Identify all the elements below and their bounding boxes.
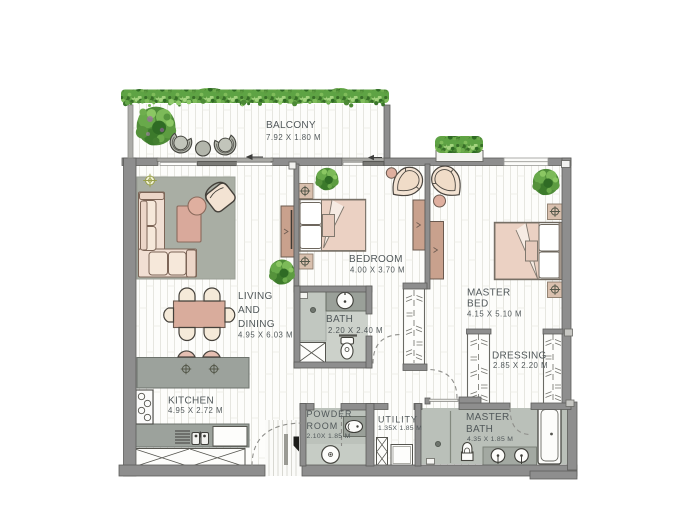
svg-text:1.35X 1.85 M: 1.35X 1.85 M — [378, 425, 422, 432]
svg-text:LIVING: LIVING — [238, 291, 273, 302]
svg-text:4.35 X 1.85 M: 4.35 X 1.85 M — [467, 436, 513, 443]
svg-text:4.95 X 6.03 M: 4.95 X 6.03 M — [238, 331, 293, 340]
svg-text:DRESSING: DRESSING — [492, 351, 547, 362]
svg-text:POWDER: POWDER — [307, 409, 353, 419]
svg-text:BATH: BATH — [466, 424, 493, 435]
svg-text:MASTER: MASTER — [467, 288, 510, 299]
svg-text:BED: BED — [467, 299, 488, 310]
svg-text:4.00 X 3.70 M: 4.00 X 3.70 M — [350, 266, 405, 275]
svg-text:2.85 X 2.20 M: 2.85 X 2.20 M — [493, 361, 548, 370]
svg-text:MASTER: MASTER — [466, 412, 509, 423]
svg-text:ROOM: ROOM — [307, 421, 339, 431]
svg-text:BEDROOM: BEDROOM — [349, 254, 403, 265]
svg-text:4.95 X 2.72 M: 4.95 X 2.72 M — [168, 406, 223, 415]
svg-text:BALCONY: BALCONY — [266, 120, 316, 131]
svg-text:AND: AND — [238, 305, 260, 316]
svg-text:DINING: DINING — [238, 319, 275, 330]
svg-text:2.10X 1.85 M: 2.10X 1.85 M — [307, 433, 351, 440]
svg-text:7.92 X 1.80 M: 7.92 X 1.80 M — [266, 133, 321, 142]
svg-text:KITCHEN: KITCHEN — [168, 396, 214, 407]
svg-text:UTILITY: UTILITY — [378, 415, 418, 425]
svg-text:4.15 X 5.10 M: 4.15 X 5.10 M — [467, 310, 522, 319]
svg-text:2.20 X 2.40 M: 2.20 X 2.40 M — [328, 326, 383, 335]
svg-text:BATH: BATH — [326, 314, 353, 325]
